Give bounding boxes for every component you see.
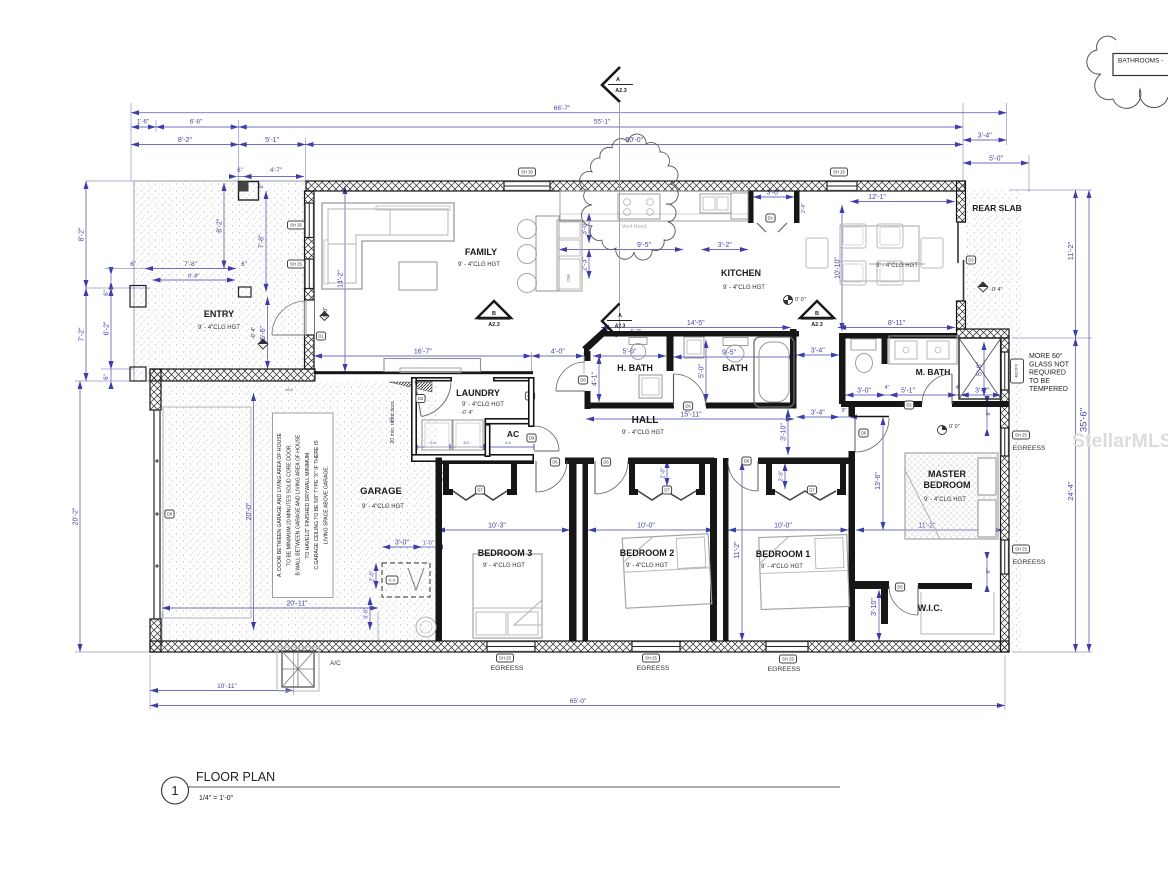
svg-text:9' - 4"CLG HGT: 9' - 4"CLG HGT [462, 402, 504, 408]
svg-text:9' - 4"CLG HGT: 9' - 4"CLG HGT [626, 563, 668, 569]
svg-text:1: 1 [171, 783, 178, 798]
svg-text:4'-1": 4'-1" [592, 372, 599, 386]
svg-text:B: B [815, 311, 819, 317]
svg-text:3'-2": 3'-2" [718, 242, 732, 249]
svg-text:6": 6" [130, 262, 135, 268]
svg-text:15'-11": 15'-11" [680, 412, 702, 419]
svg-text:4'-7": 4'-7" [270, 168, 282, 174]
svg-text:A2.3: A2.3 [615, 324, 626, 330]
svg-text:-0' 4": -0' 4" [461, 410, 474, 416]
svg-text:6": 6" [104, 374, 110, 379]
svg-text:EGREESS: EGREESS [637, 665, 670, 672]
svg-text:3'-4": 3'-4" [811, 410, 825, 417]
svg-text:3'-0": 3'-0" [857, 388, 871, 395]
svg-text:D6: D6 [603, 460, 609, 465]
svg-text:AC: AC [507, 429, 519, 439]
svg-text:11'-2": 11'-2" [1066, 241, 1075, 260]
svg-text:6": 6" [241, 262, 246, 268]
svg-text:BEDROOM: BEDROOM [924, 480, 971, 490]
svg-text:6": 6" [986, 410, 992, 415]
svg-text:ENTRY: ENTRY [204, 309, 234, 319]
svg-text:14'-2": 14'-2" [338, 270, 345, 288]
svg-text:D7: D7 [664, 488, 670, 493]
svg-text:20'-2": 20'-2" [73, 507, 80, 525]
svg-text:SH 25: SH 25 [833, 170, 845, 175]
svg-text:FAMILY: FAMILY [465, 247, 497, 257]
svg-text:1'-6": 1'-6" [137, 119, 149, 126]
svg-text:6": 6" [986, 568, 992, 573]
svg-text:9' - 4"CLG HGT: 9' - 4"CLG HGT [761, 564, 803, 570]
svg-text:5'-6": 5'-6" [260, 326, 267, 340]
svg-text:6": 6" [237, 168, 242, 174]
svg-text:6'-8": 6'-8" [190, 119, 202, 126]
svg-text:TEMPERED: TEMPERED [1029, 386, 1068, 393]
svg-text:3'-0": 3'-0" [582, 221, 589, 235]
svg-text:StellarMLS: StellarMLS [1072, 430, 1168, 452]
svg-text:B: B [492, 311, 496, 317]
svg-text:TO BE: TO BE [1029, 378, 1050, 385]
svg-text:1'-0": 1'-0" [423, 541, 434, 547]
svg-text:SH 25: SH 25 [1015, 433, 1027, 438]
svg-text:5'-1": 5'-1" [265, 137, 279, 144]
svg-text:11'-2": 11'-2" [734, 541, 741, 559]
svg-text:D9: D9 [529, 436, 535, 441]
svg-text:0' 0": 0' 0" [795, 297, 806, 303]
svg-text:6": 6" [104, 290, 110, 295]
svg-text:D6: D6 [552, 460, 558, 465]
svg-text:65'-0": 65'-0" [570, 698, 587, 705]
svg-text:D8: D8 [167, 512, 173, 517]
svg-text:TO BE MINIMUM 20 MINUTES SOLID: TO BE MINIMUM 20 MINUTES SOLID CORE DOOR… [286, 444, 292, 566]
svg-text:3'-0": 3'-0" [395, 540, 409, 547]
svg-text:1/4" = 1'-0": 1/4" = 1'-0" [199, 795, 234, 802]
svg-text:-0' 4": -0' 4" [251, 327, 257, 340]
svg-text:D6: D6 [580, 378, 586, 383]
svg-text:35'-6": 35'-6" [1079, 408, 1090, 432]
svg-text:KITCHEN: KITCHEN [721, 268, 761, 278]
svg-text:FLOOR PLAN: FLOOR PLAN [196, 770, 275, 784]
svg-text:B.WALL BETWEEN GARAGE AND LIVI: B.WALL BETWEEN GARAGE AND LIVING AREA OF… [296, 434, 302, 575]
svg-text:DW: DW [566, 274, 571, 282]
svg-text:2'-0": 2'-0" [779, 470, 785, 481]
svg-text:6": 6" [259, 183, 265, 188]
svg-text:4.6: 4.6 [505, 440, 511, 445]
svg-text:EGREESS: EGREESS [1013, 445, 1046, 452]
svg-text:D1: D1 [318, 334, 324, 339]
svg-text:20'-11": 20'-11" [286, 601, 308, 608]
svg-text:24'-4": 24'-4" [1066, 481, 1075, 500]
svg-text:EGREESS: EGREESS [1013, 559, 1046, 566]
svg-text:D2: D2 [418, 396, 424, 401]
svg-text:BEDROOM 1: BEDROOM 1 [756, 549, 811, 559]
svg-text:2'-0": 2'-0" [370, 570, 376, 581]
svg-text:A2.3: A2.3 [615, 88, 627, 94]
svg-text:GLASS NOT: GLASS NOT [1029, 361, 1070, 368]
svg-text:M. BATH: M. BATH [916, 367, 951, 377]
svg-text:10'-3": 10'-3" [488, 523, 506, 530]
svg-text:9' - 4"CLG HGT: 9' - 4"CLG HGT [198, 325, 240, 331]
svg-text:SH 25: SH 25 [290, 262, 302, 267]
svg-text:7'-8": 7'-8" [259, 234, 266, 248]
svg-text:EGREESS: EGREESS [491, 665, 524, 672]
svg-text:5'-0": 5'-0" [989, 156, 1003, 163]
svg-text:2'-0": 2'-0" [661, 467, 667, 478]
svg-text:6'-8": 6'-8" [188, 274, 200, 280]
svg-text:10'-0": 10'-0" [774, 523, 792, 530]
svg-text:SH 25: SH 25 [645, 656, 657, 661]
svg-text:8'-2": 8'-2" [79, 227, 86, 241]
svg-text:9' - 4"CLG HGT: 9' - 4"CLG HGT [723, 285, 765, 291]
svg-text:3'-4": 3'-4" [978, 133, 992, 140]
svg-text:3'-4": 3'-4" [811, 348, 825, 355]
svg-text:4'-0": 4'-0" [551, 349, 565, 356]
svg-text:MORE 60°: MORE 60° [1029, 352, 1063, 360]
svg-text:8'-2": 8'-2" [217, 218, 224, 232]
svg-text:EGREESS: EGREESS [768, 666, 801, 673]
svg-text:REAR SLAB: REAR SLAB [972, 203, 1022, 213]
svg-text:10'-0": 10'-0" [637, 523, 655, 530]
svg-text:SH 25: SH 25 [782, 657, 794, 662]
svg-text:D5: D5 [906, 403, 912, 408]
svg-text:D7: D7 [809, 488, 815, 493]
svg-text:MASTER: MASTER [928, 469, 967, 479]
svg-text:7'-8": 7'-8" [184, 261, 197, 268]
svg-text:DA: DA [768, 216, 774, 221]
svg-text:A/C: A/C [330, 660, 341, 667]
svg-text:2'-3": 2'-3" [582, 257, 589, 271]
svg-text:9' - 4"CLG HGT: 9' - 4"CLG HGT [362, 504, 404, 510]
svg-text:9' - 4"CLG HGT: 9' - 4"CLG HGT [483, 563, 525, 569]
svg-text:SH 25: SH 25 [1015, 547, 1027, 552]
svg-text:4812FX: 4812FX [1014, 364, 1019, 378]
svg-text:4": 4" [956, 385, 961, 391]
svg-text:10'-11": 10'-11" [217, 683, 237, 690]
svg-text:BEDROOM 2: BEDROOM 2 [620, 548, 675, 558]
svg-text:LIVING SPACE ABOVE GARAGE.: LIVING SPACE ABOVE GARAGE. [324, 466, 330, 544]
svg-text:3.0: 3.0 [463, 440, 469, 445]
svg-text:16'-7": 16'-7" [414, 349, 432, 356]
svg-text:A: A [618, 313, 622, 319]
svg-text:3'-8": 3'-8" [364, 608, 370, 619]
svg-text:7'-2": 7'-2" [79, 327, 86, 341]
svg-text:SH 35: SH 35 [290, 223, 302, 228]
svg-text:TO HAVE1/2" FINISHED DRYWALL M: TO HAVE1/2" FINISHED DRYWALL MINIMUM. [305, 451, 311, 558]
svg-text:A. DOOR BETWEEN GARAGE AND LIV: A. DOOR BETWEEN GARAGE AND LIVING AREA O… [277, 432, 283, 577]
svg-text:H. BATH: H. BATH [617, 363, 653, 373]
svg-text:SH 25: SH 25 [499, 656, 511, 661]
svg-text:5'-6": 5'-6" [623, 349, 637, 356]
svg-text:9' - 4"CLG HGT: 9' - 4"CLG HGT [924, 497, 966, 503]
svg-text:5'-1": 5'-1" [901, 388, 915, 395]
svg-text:C.GARAGE CEILING TO BE 5/8" TY: C.GARAGE CEILING TO BE 5/8" TYPE "X" IF … [314, 440, 320, 570]
svg-text:D5: D5 [897, 585, 903, 590]
svg-text:18.9: 18.9 [285, 387, 294, 392]
svg-text:D7: D7 [477, 488, 483, 493]
svg-text:4": 4" [885, 385, 890, 391]
svg-text:-0' 4": -0' 4" [990, 287, 1003, 293]
svg-text:W.I.C.: W.I.C. [918, 603, 943, 613]
svg-text:A2.3: A2.3 [811, 322, 823, 328]
svg-text:20'-0": 20'-0" [246, 502, 253, 520]
svg-text:A2.3: A2.3 [488, 322, 500, 328]
svg-text:HALL: HALL [632, 415, 659, 426]
svg-text:12'-1": 12'-1" [868, 194, 886, 201]
svg-text:13'-6": 13'-6" [875, 472, 882, 490]
svg-text:20 min. rated door.: 20 min. rated door. [390, 400, 396, 443]
svg-text:D3: D3 [968, 258, 974, 263]
svg-text:9' - 4"CLG HGT: 9' - 4"CLG HGT [458, 262, 500, 268]
svg-text:9'-5": 9'-5" [637, 242, 651, 249]
svg-text:GARAGE: GARAGE [360, 486, 402, 497]
svg-text:LAUNDRY: LAUNDRY [456, 388, 500, 398]
svg-text:3'-10": 3'-10" [781, 423, 788, 441]
svg-text:8'-2": 8'-2" [178, 137, 192, 144]
svg-text:A: A [616, 77, 620, 83]
svg-text:9": 9" [841, 408, 846, 414]
svg-text:D6: D6 [685, 404, 691, 409]
svg-text:Vent Hood: Vent Hood [622, 224, 646, 230]
svg-text:8'-11": 8'-11" [888, 320, 906, 327]
svg-text:55'-1": 55'-1" [594, 119, 611, 126]
svg-text:BATHROOMS -: BATHROOMS - [1118, 58, 1163, 65]
svg-text:D6: D6 [744, 459, 750, 464]
svg-text:D6: D6 [861, 431, 867, 436]
svg-text:BEDROOM 3: BEDROOM 3 [478, 548, 533, 558]
svg-text:REQUIRED: REQUIRED [1029, 370, 1066, 377]
svg-text:9'-5": 9'-5" [722, 350, 736, 357]
svg-text:6'-2": 6'-2" [104, 321, 111, 335]
svg-text:66'-7": 66'-7" [554, 105, 571, 112]
svg-text:5.0: 5.0 [430, 440, 436, 445]
svg-text:2'-4": 2'-4" [801, 203, 807, 213]
svg-text:14'-5": 14'-5" [687, 320, 705, 327]
svg-text:5'-0": 5'-0" [699, 364, 706, 378]
svg-text:SH 35: SH 35 [521, 170, 533, 175]
svg-text:0' 0": 0' 0" [949, 424, 960, 430]
svg-text:A.A: A.A [388, 578, 395, 583]
svg-text:3'-10": 3'-10" [871, 598, 878, 616]
svg-text:BATH: BATH [722, 363, 748, 374]
svg-text:9' - 4"CLG HGT: 9' - 4"CLG HGT [622, 430, 664, 436]
